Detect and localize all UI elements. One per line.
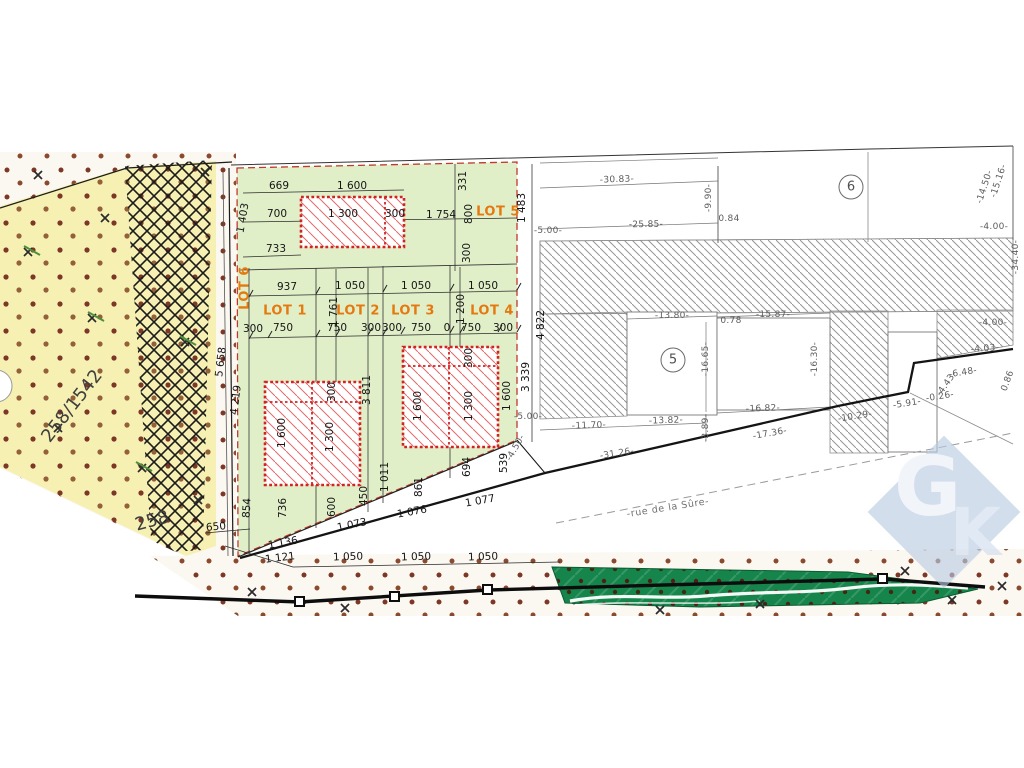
measure-label: 0.78 — [720, 316, 741, 326]
measure-label: -4.50- — [505, 433, 528, 463]
dimension-label: 300 — [493, 322, 513, 334]
lot-label: LOT 6 — [238, 266, 253, 310]
dimension-label: 1 050 — [333, 550, 363, 563]
measure-label: -4.00- — [979, 318, 1007, 328]
lot-label: LOT 5 — [476, 205, 520, 220]
dimension-label: 1 077 — [464, 492, 496, 509]
dimension-label: 669 — [269, 180, 289, 192]
dimension-label: 1 600 — [276, 418, 288, 448]
site-plan-canvas: G K 6691 6007001 3003001 7547339371 0501… — [0, 0, 1024, 768]
lot-label: LOT 4 — [470, 304, 514, 319]
dimension-label: 854 — [240, 498, 253, 519]
lot-label: LOT 3 — [391, 304, 435, 319]
dimension-label: 1 050 — [401, 550, 431, 563]
dimension-label: 1 300 — [328, 208, 358, 220]
measure-label: -5.00- — [514, 412, 542, 422]
dimension-label: 1 600 — [337, 180, 367, 192]
dimension-label: 1 403 — [234, 202, 251, 234]
parcel-circle-number: 6 — [839, 175, 864, 200]
dimension-label: 1 754 — [426, 209, 456, 221]
dimension-label: 1 076 — [396, 503, 428, 520]
measure-label: -30.83- — [600, 174, 635, 185]
dimension-label: 800 — [463, 204, 475, 224]
dimension-label: 600 — [326, 497, 338, 517]
dimension-label: 650 — [205, 520, 226, 534]
measure-label: -16.65- — [701, 342, 711, 376]
dimension-label: 750 — [273, 322, 293, 334]
dimension-label: 700 — [267, 208, 287, 220]
dimension-label: 1 050 — [401, 280, 431, 292]
dimension-label: 300 — [385, 208, 405, 220]
parcel-circle-number: 5 — [661, 348, 686, 373]
annotation-layer: 6691 6007001 3003001 7547339371 0501 050… — [0, 0, 1024, 768]
lot-label: LOT 2 — [336, 304, 380, 319]
measure-label: -5.91- — [892, 397, 922, 411]
dimension-label: 300 — [463, 348, 475, 368]
dimension-label: 300 — [243, 323, 263, 335]
dimension-label: 736 — [277, 498, 289, 518]
dimension-label: 1 050 — [468, 280, 498, 292]
dimension-label: 1 136 — [267, 534, 299, 551]
street-name: -rue de la Sûre- — [626, 496, 710, 520]
dimension-label: 450 — [358, 486, 370, 506]
dimension-label: 0 — [444, 322, 451, 334]
measure-label: -13.80- — [655, 311, 689, 321]
dimension-label: 4 822 — [535, 310, 547, 340]
measure-label: -17.36- — [752, 426, 788, 442]
measure-label: -16.30- — [810, 342, 820, 376]
dimension-label: 1 200 — [455, 294, 467, 324]
measure-label: -4.00- — [980, 222, 1008, 232]
measure-label: -11.70- — [572, 420, 607, 431]
dimension-label: 5 658 — [213, 346, 229, 377]
dimension-label: 1 300 — [463, 391, 475, 421]
dimension-label: 937 — [277, 281, 297, 293]
dimension-label: 750 — [411, 322, 431, 334]
dimension-label: 3 339 — [520, 362, 532, 392]
parcel-number: 258/1542 — [37, 366, 107, 447]
dimension-label: 1 300 — [324, 422, 336, 452]
measure-label: -5.00- — [534, 226, 562, 236]
lot-label: LOT 1 — [263, 304, 307, 319]
dimension-label: 1 011 — [379, 462, 391, 492]
dimension-label: 331 — [457, 171, 469, 191]
dimension-label: 300 — [361, 322, 381, 334]
dimension-label: 861 — [413, 477, 425, 497]
measure-label: -15.87- — [756, 310, 790, 320]
measure-label: -3.89- — [701, 414, 711, 442]
dimension-label: 300 — [382, 322, 402, 334]
dimension-label: 300 — [461, 243, 473, 263]
dimension-label: 694 — [461, 457, 473, 477]
dimension-label: 300 — [326, 382, 338, 402]
dimension-label: 4 219 — [228, 384, 244, 415]
dimension-label: 3 811 — [361, 375, 373, 405]
measure-label: -4.03- — [971, 343, 1000, 355]
dimension-label: 1 600 — [412, 391, 424, 421]
dimension-label: 1 600 — [501, 381, 513, 411]
measure-label: -25.85- — [629, 220, 664, 231]
dimension-label: 1 073 — [336, 516, 368, 534]
measure-label: 0.84 — [718, 214, 739, 224]
measure-label: -13.82- — [649, 415, 684, 426]
measure-label: -10.29- — [837, 409, 873, 424]
dimension-label: 1 050 — [335, 280, 365, 292]
measure-label: -31.26- — [599, 446, 635, 461]
measure-label: 0.86 — [1000, 369, 1017, 392]
dimension-label: 1 050 — [468, 550, 498, 563]
dimension-label: 1 121 — [264, 550, 295, 566]
measure-label: -9.90- — [704, 184, 714, 212]
measure-label: -34.40- — [1011, 240, 1021, 274]
dimension-label: 733 — [266, 243, 286, 255]
parcel-number: 258 — [133, 506, 172, 535]
measure-label: -16.82- — [746, 403, 781, 414]
